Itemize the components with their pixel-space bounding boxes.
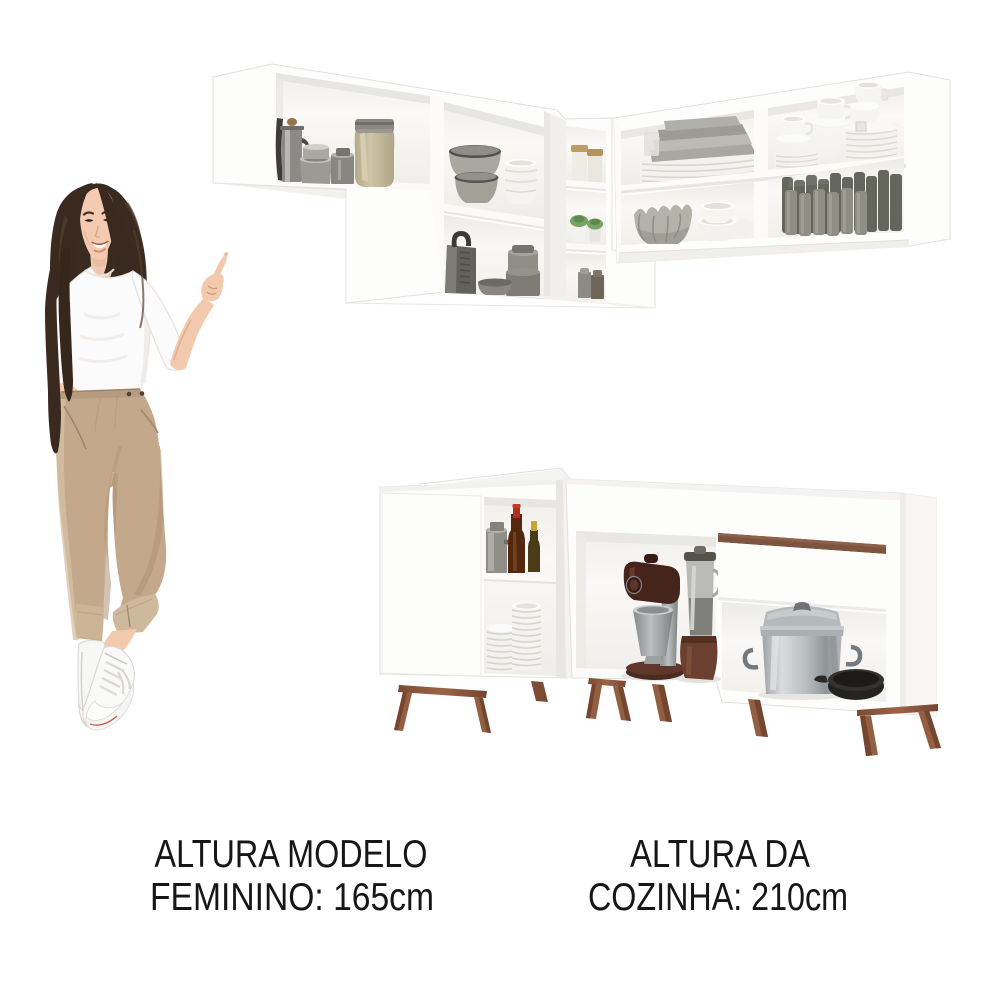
svg-text:ALTURA DA: ALTURA DA — [630, 833, 810, 876]
svg-text:ALTURA MODELO: ALTURA MODELO — [155, 833, 428, 876]
svg-text:FEMININO: 165cm: FEMININO: 165cm — [150, 876, 434, 919]
svg-text:COZINHA: 210cm: COZINHA: 210cm — [588, 876, 848, 919]
